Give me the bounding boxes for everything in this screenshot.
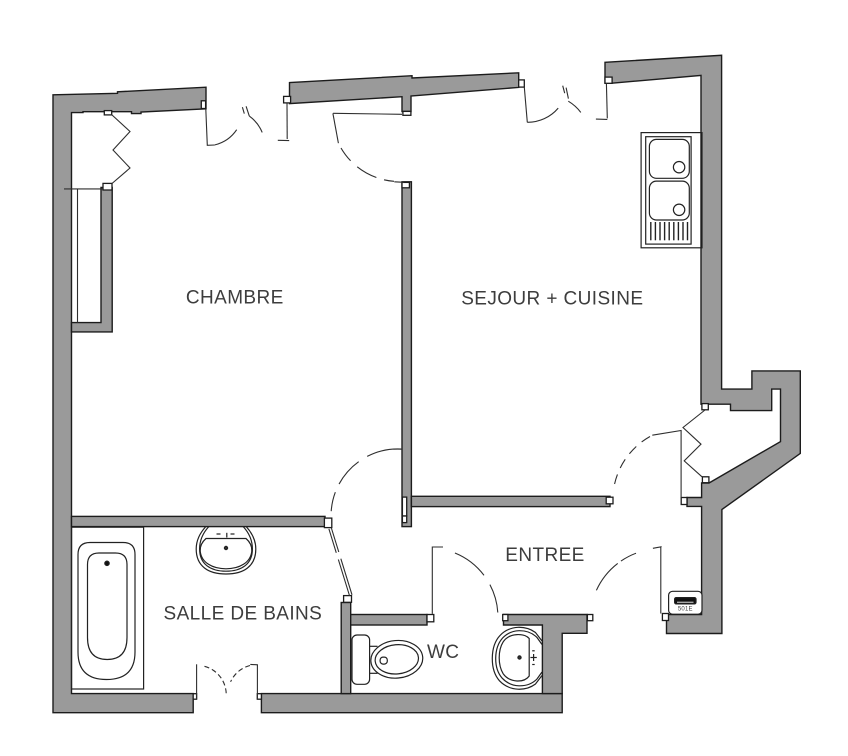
svg-text:ENTREE: ENTREE xyxy=(505,545,584,566)
svg-text:SEJOUR + CUISINE: SEJOUR + CUISINE xyxy=(461,289,643,310)
svg-text:WC: WC xyxy=(427,642,459,663)
svg-text:SALLE DE BAINS: SALLE DE BAINS xyxy=(164,604,323,625)
svg-text:CHAMBRE: CHAMBRE xyxy=(186,288,284,309)
svg-text:501E: 501E xyxy=(678,607,693,613)
